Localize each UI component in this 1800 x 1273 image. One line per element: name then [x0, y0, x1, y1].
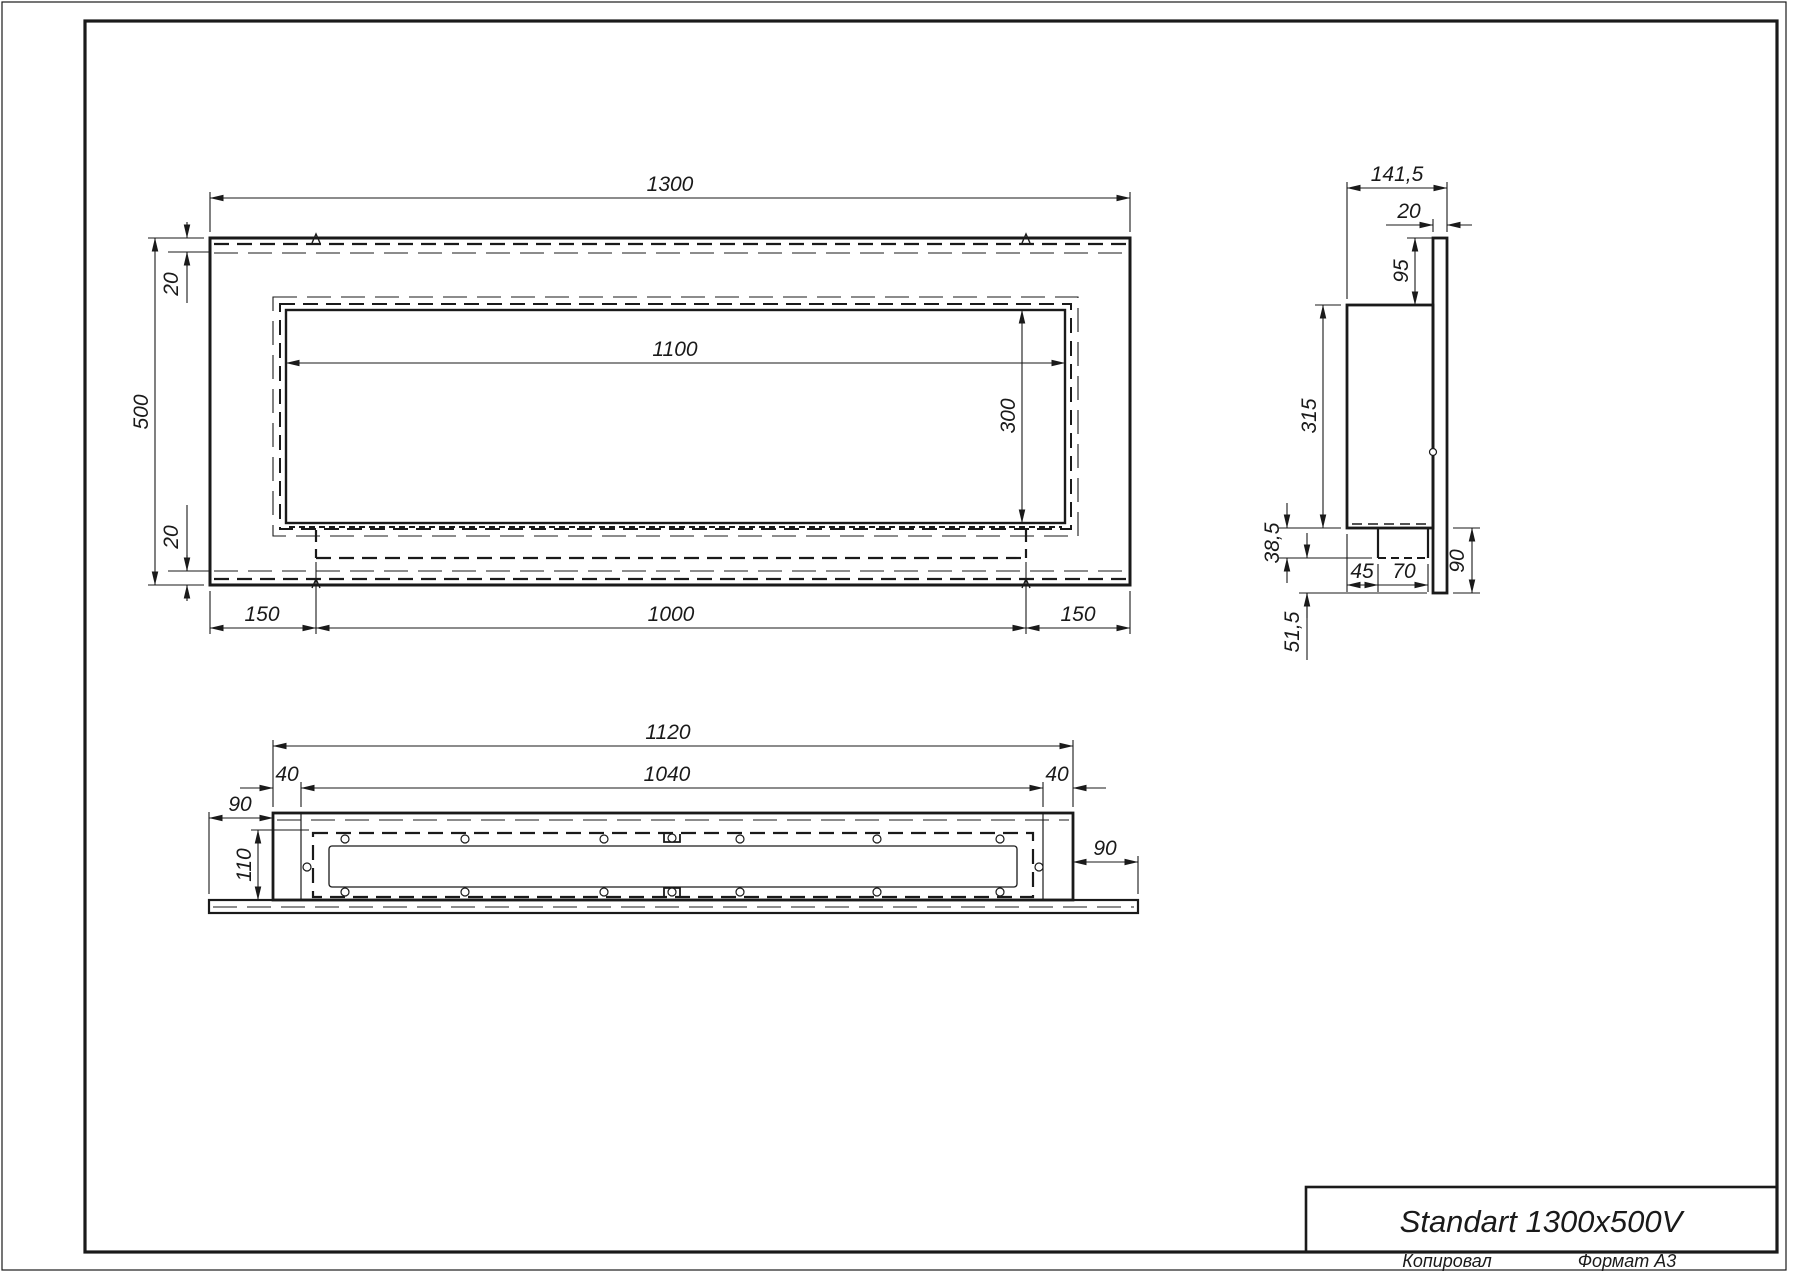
- dim-side-tail: 51,5: [1281, 611, 1304, 652]
- front-view-dimensions: [148, 192, 1130, 634]
- dim-front-burner-width: 1000: [648, 603, 695, 626]
- dim-front-opening-height: 300: [997, 398, 1020, 433]
- dim-front-overall-height: 500: [130, 394, 153, 429]
- footer-copied-label: Копировал: [1402, 1251, 1492, 1271]
- dim-bottom-left-wall: 40: [275, 763, 299, 786]
- bottom-view-dim-labels: 1120 1040 40 40 90 90 110: [228, 721, 1117, 882]
- dim-bottom-right-flange: 90: [1093, 837, 1117, 860]
- page-edge-border: [2, 2, 1786, 1270]
- dim-side-flange: 90: [1446, 549, 1469, 573]
- dim-front-bottom-inset: 20: [160, 525, 183, 550]
- dim-side-tray-height: 38,5: [1261, 522, 1284, 563]
- dim-front-right-margin: 150: [1060, 603, 1095, 626]
- dim-side-panel-thickness: 20: [1396, 200, 1421, 223]
- dim-bottom-left-flange: 90: [228, 793, 252, 816]
- footer-format-label: Формат А3: [1578, 1251, 1677, 1271]
- dim-side-tray-offset: 45: [1350, 560, 1374, 583]
- dim-bottom-inner-width: 1040: [644, 763, 691, 786]
- dim-side-body-height: 315: [1298, 398, 1321, 433]
- dim-bottom-outer-width: 1120: [645, 721, 690, 744]
- bottom-view: [209, 813, 1138, 913]
- dim-side-top-gap: 95: [1390, 259, 1413, 283]
- footer-notes: Копировал Формат А3: [1402, 1251, 1676, 1271]
- side-view: [1347, 238, 1447, 593]
- dim-front-left-margin: 150: [244, 603, 279, 626]
- dim-side-depth: 141,5: [1371, 163, 1424, 186]
- dim-side-tray-width: 70: [1392, 560, 1416, 583]
- drawing-canvas: 1300 500 20 20 1100 300 150 1000 150: [0, 0, 1800, 1273]
- dim-front-opening-width: 1100: [652, 338, 697, 361]
- side-view-dim-labels: 141,5 20 95 315 38,5 51,5 45 70 90: [1261, 163, 1469, 652]
- sheet-borders: [2, 2, 1786, 1270]
- dim-bottom-depth: 110: [233, 848, 256, 882]
- dim-front-overall-width: 1300: [647, 173, 694, 196]
- drawing-sheet: 1300 500 20 20 1100 300 150 1000 150: [0, 0, 1800, 1273]
- dim-bottom-right-wall: 40: [1045, 763, 1069, 786]
- drawing-title: Standart 1300x500V: [1400, 1204, 1686, 1239]
- title-block: Standart 1300x500V: [1400, 1204, 1686, 1239]
- front-view: [210, 234, 1130, 588]
- main-frame: [85, 21, 1777, 1252]
- keyhole-slot-marks: [312, 234, 1030, 588]
- dim-front-top-inset: 20: [160, 272, 183, 297]
